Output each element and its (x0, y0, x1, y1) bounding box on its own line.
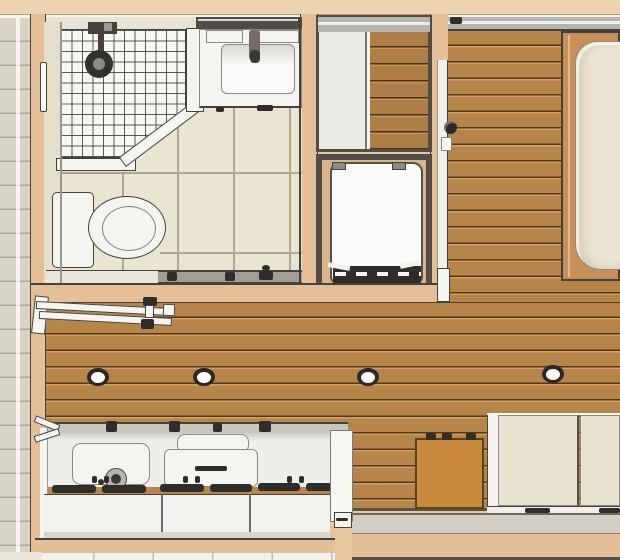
drawer-slot-5 (258, 483, 300, 491)
washer-hinge-right (392, 162, 406, 170)
table-tab-1 (426, 433, 436, 440)
table-tab-2 (442, 433, 452, 440)
rail-clip-2 (169, 421, 180, 432)
closet-wood-floor (370, 32, 428, 149)
vanity-shelf-left (206, 30, 243, 43)
cabinet-door-left (498, 415, 579, 506)
bottom-wall-band-right (352, 533, 620, 557)
door-frame-line (60, 22, 62, 284)
counter-side-panel (330, 430, 353, 522)
counter-foot-mark (336, 518, 348, 521)
closet-top-track (318, 17, 430, 32)
washer-hinge-left (332, 162, 346, 170)
mirror-glint (198, 19, 298, 21)
door-knob (444, 121, 457, 134)
side-table (415, 438, 484, 509)
rail-clip-3 (213, 423, 222, 432)
bathroom-top-wall (46, 17, 196, 30)
hallway-top-track (448, 17, 620, 31)
mirror-strip (196, 17, 302, 29)
track-stop (450, 17, 462, 24)
rail-hanger-post (145, 305, 154, 318)
grout-line-v3 (233, 108, 235, 270)
top-wall-band (0, 0, 620, 15)
bed-frame-highlight (568, 35, 570, 277)
bathroom-sill (46, 270, 158, 284)
track-glint (448, 21, 620, 24)
hall-door-edge (437, 60, 448, 303)
drying-rail (33, 295, 183, 337)
grout-line-h2 (160, 252, 302, 254)
appliance-vent-slot (195, 466, 227, 471)
kick-band (35, 538, 335, 553)
grout-line-v4 (289, 108, 291, 270)
drawer-slot-1 (52, 485, 96, 493)
rail-clip-1 (106, 421, 117, 432)
drawer-slot-2 (102, 485, 146, 493)
kitchen-counter (42, 418, 352, 560)
track-roller-1 (167, 272, 177, 281)
counter-knob-1 (92, 476, 97, 483)
bathroom (46, 17, 302, 288)
closet (316, 15, 432, 152)
bottom-left-floor (0, 552, 42, 560)
drawer-slot-4 (210, 484, 252, 492)
floorplan-render (0, 0, 620, 560)
exterior-siding (0, 18, 30, 560)
drawer-slot-3 (160, 484, 204, 492)
closet-white-panel (319, 32, 367, 149)
rail-end-tip (163, 304, 176, 317)
counter-knob-4 (195, 476, 200, 483)
toilet-seat-line (102, 206, 156, 251)
grout-line-h1 (46, 172, 302, 174)
storage-cabinet (487, 413, 620, 517)
table-tab-3 (466, 433, 476, 440)
cabinet-door-right (580, 415, 620, 506)
shower-arm-box (104, 23, 112, 31)
track-knob (262, 265, 270, 271)
vanity-drawer-pull (257, 105, 273, 111)
mattress (575, 41, 620, 270)
bathroom-right-wall-line (299, 17, 301, 288)
rail-clip-4 (259, 421, 271, 432)
counter-knob-5 (287, 476, 292, 483)
kitchen-faucet-center (111, 474, 121, 484)
track-roller-3 (259, 271, 273, 280)
laundry-nook (316, 154, 432, 292)
concrete-band (352, 513, 620, 533)
shower-tray (60, 29, 186, 158)
grout-line-v2 (177, 108, 179, 270)
wall-corner-cap (437, 268, 450, 302)
closet-track-glint (318, 22, 430, 25)
counter-knob-2 (104, 476, 109, 483)
shower-head-center (93, 58, 105, 70)
siding-highlight (16, 18, 20, 560)
sink-faucet-spout (250, 50, 260, 63)
bed-frame (561, 31, 620, 281)
kitchen-floor-tiles (35, 553, 335, 560)
bathroom-door-handle (40, 62, 47, 112)
track-roller-2 (225, 272, 235, 281)
vanity-drawer-pull-2 (216, 107, 224, 112)
counter-knob-6 (299, 476, 304, 483)
hall-door-plate (441, 137, 452, 151)
rail-hanger-foot (141, 319, 154, 329)
counter-knob-3 (183, 476, 188, 483)
